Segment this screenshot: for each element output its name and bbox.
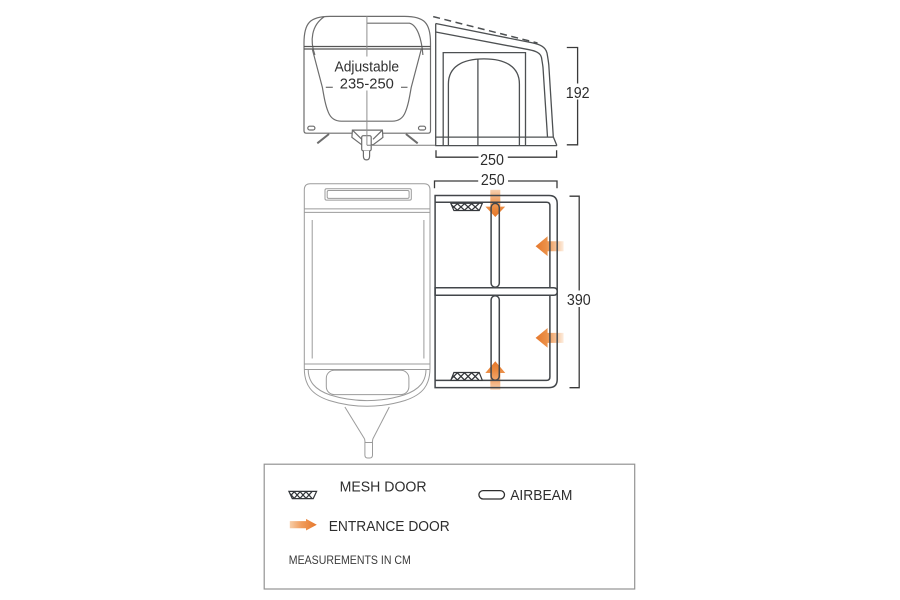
svg-text:MEASUREMENTS IN CM: MEASUREMENTS IN CM: [289, 553, 411, 567]
svg-text:390: 390: [567, 292, 591, 309]
svg-text:AIRBEAM: AIRBEAM: [510, 487, 572, 504]
svg-text:ENTRANCE DOOR: ENTRANCE DOOR: [329, 518, 450, 535]
svg-text:Adjustable: Adjustable: [335, 59, 400, 76]
svg-text:250: 250: [480, 152, 504, 169]
svg-text:MESH DOOR: MESH DOOR: [340, 478, 427, 495]
svg-text:250: 250: [481, 172, 505, 189]
svg-text:192: 192: [566, 85, 590, 102]
svg-text:235-250: 235-250: [340, 76, 394, 93]
